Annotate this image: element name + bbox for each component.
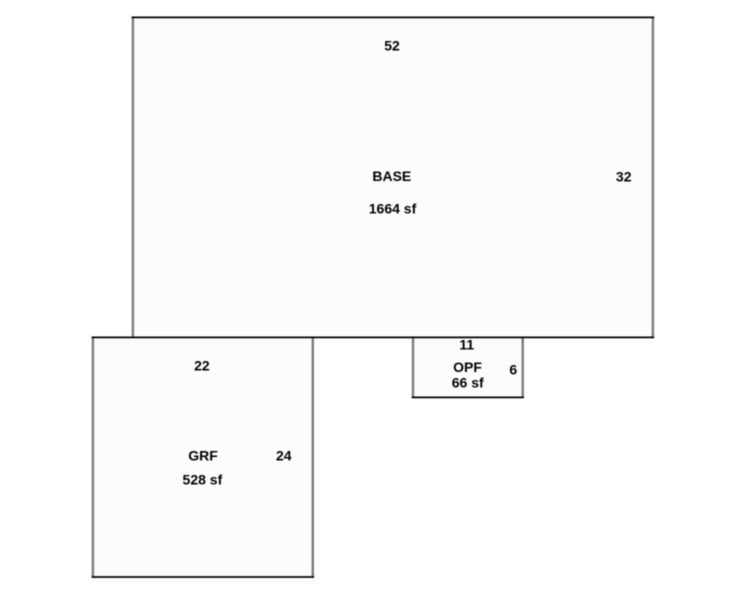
svg-text:11: 11	[459, 337, 474, 353]
svg-text:BASE: BASE	[372, 168, 411, 184]
svg-text:GRF: GRF	[188, 447, 218, 463]
svg-text:OPF: OPF	[453, 359, 482, 375]
svg-text:6: 6	[509, 362, 517, 378]
svg-text:528 sf: 528 sf	[183, 472, 223, 488]
svg-text:66 sf: 66 sf	[452, 375, 484, 391]
svg-text:22: 22	[194, 357, 210, 373]
svg-text:1664 sf: 1664 sf	[369, 201, 417, 217]
svg-text:52: 52	[384, 37, 400, 53]
svg-text:32: 32	[616, 168, 632, 184]
svg-text:24: 24	[276, 447, 292, 463]
